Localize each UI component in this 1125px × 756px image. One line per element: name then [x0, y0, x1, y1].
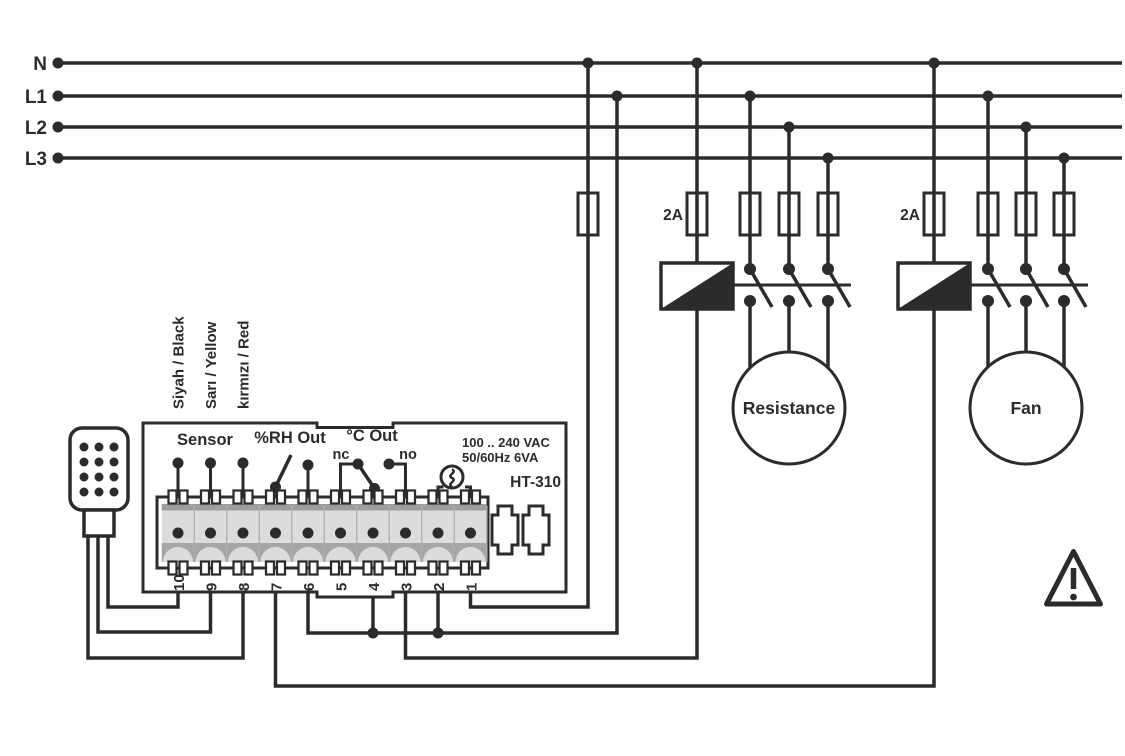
contactor-fan: Fan: [898, 263, 1088, 464]
contactor-resistance: Resistance: [661, 263, 851, 464]
wire-color-label: Sarı / Yellow: [203, 321, 220, 409]
junction-dot: [433, 628, 444, 639]
device-rating-line1: 100 .. 240 VAC: [462, 435, 551, 450]
sensor-pin-dot: [173, 458, 184, 469]
device-c-out-label: °C Out: [346, 427, 398, 445]
sensor-pin-dot: [238, 458, 249, 469]
rail-n: N: [33, 54, 1122, 75]
load-label-fan: Fan: [1010, 398, 1041, 418]
terminal-number: 4: [366, 582, 383, 591]
warning-exclamation-dot: [1070, 594, 1077, 601]
terminal-number: 1: [464, 583, 481, 591]
contactor-coil-resistance: [661, 263, 733, 309]
rail-l2: L2: [25, 118, 1122, 139]
device-no-label: no: [399, 447, 417, 463]
sensor-neck: [84, 510, 114, 536]
c-switch-no-dot: [384, 459, 395, 470]
device-model-label: HT-310: [510, 474, 561, 491]
wiring-diagram-page: N L1 L2 L3: [0, 0, 1125, 756]
rail-n-label: N: [33, 54, 47, 75]
terminal-number: 8: [236, 583, 253, 591]
terminal-number: 6: [301, 583, 318, 591]
rail-l3-label: L3: [25, 149, 47, 170]
device-rh-out-label: %RH Out: [254, 429, 326, 447]
terminal-number: 2: [431, 583, 448, 591]
junction-dot: [1059, 153, 1070, 164]
rail-l1: L1: [25, 87, 1122, 108]
device-sensor-label: Sensor: [177, 431, 234, 449]
supply-drops: [583, 58, 1070, 270]
power-rails: N L1 L2 L3: [25, 54, 1122, 170]
junction-dot: [583, 58, 594, 69]
ac-supply-symbol: [441, 466, 463, 488]
load-circle-resistance: Resistance: [733, 352, 845, 464]
device-rating-line2: 50/60Hz 6VA: [462, 450, 539, 465]
rail-junction-dots: [583, 58, 1070, 164]
fuse-rating-label: 2A: [663, 207, 683, 224]
terminal-number: 5: [334, 583, 351, 591]
wiring-diagram: N L1 L2 L3: [0, 0, 1125, 756]
c-switch-nc-dot: [353, 459, 364, 470]
sensor-pin-dot: [205, 458, 216, 469]
device-ht310: Sensor %RH Out °C Out nc no 100 .. 240 V…: [143, 423, 566, 597]
rh-switch-contact-dot: [303, 460, 314, 471]
junction-dot: [983, 91, 994, 102]
rail-l3: L3: [25, 149, 1122, 170]
load-label-resistance: Resistance: [743, 398, 836, 418]
fuses: 2A 2A: [578, 193, 1074, 235]
sensor-body: [70, 428, 128, 510]
terminal-number: 7: [269, 583, 286, 591]
junction-dot: [612, 91, 623, 102]
junction-dot: [368, 628, 379, 639]
fuse-rating-label: 2A: [900, 207, 920, 224]
rail-l2-label: L2: [25, 118, 47, 139]
terminal-number: 3: [399, 583, 416, 591]
junction-dot: [929, 58, 940, 69]
terminal-number: 9: [204, 583, 221, 591]
sensor-wire-color-labels: Siyah / Black Sarı / Yellow kırmızı / Re…: [171, 316, 253, 409]
terminal-number: 10: [171, 574, 188, 591]
load-circle-fan: Fan: [970, 352, 1082, 464]
wire-color-label: kırmızı / Red: [236, 321, 253, 409]
junction-dot: [784, 122, 795, 133]
sensor-probe: [70, 428, 128, 536]
junction-dot: [1021, 122, 1032, 133]
wire-color-label: Siyah / Black: [171, 316, 188, 409]
device-nc-label: nc: [333, 447, 350, 463]
junction-dot: [692, 58, 703, 69]
warning-icon: [1047, 552, 1101, 605]
contactor-coil-fan: [898, 263, 970, 309]
junction-dot: [745, 91, 756, 102]
junction-dot: [823, 153, 834, 164]
rail-l1-label: L1: [25, 87, 48, 108]
